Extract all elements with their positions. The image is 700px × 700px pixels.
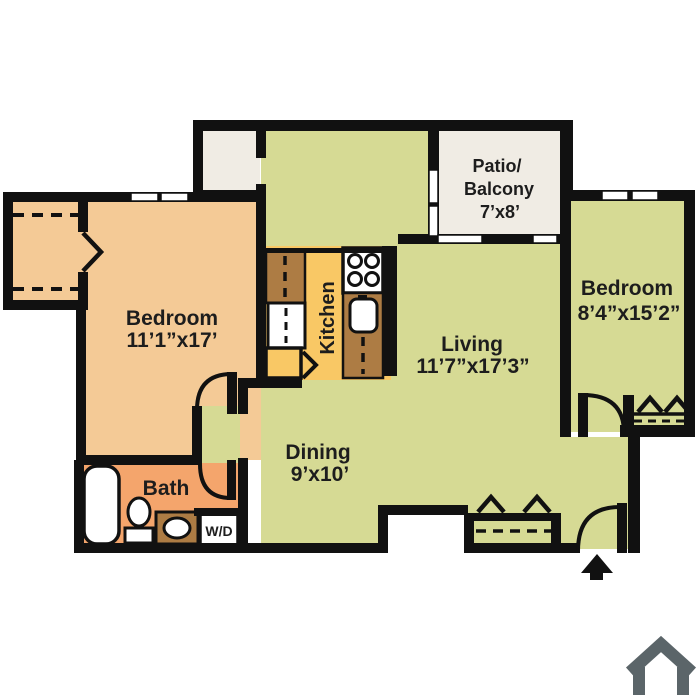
- burner-icon: [349, 273, 362, 286]
- wall-segment: [76, 455, 202, 465]
- washer-dryer-label: W/D: [205, 523, 232, 539]
- door-leaf: [578, 393, 588, 437]
- kitchen-label: Kitchen: [317, 281, 339, 354]
- wall-segment: [382, 246, 397, 376]
- entry-arrow-head: [581, 554, 613, 573]
- door-leaf: [227, 372, 237, 414]
- right-bedroom-label: Bedroom: [581, 277, 673, 300]
- pantry-cabinet-icon: [266, 348, 301, 378]
- wall-segment: [193, 120, 573, 131]
- living-dims: 11’7”x17’3”: [416, 355, 529, 378]
- house-wall-right: [677, 667, 689, 695]
- bath-label: Bath: [143, 477, 190, 500]
- burner-icon: [366, 255, 379, 268]
- toilet-tank-icon: [125, 528, 153, 543]
- wall-segment: [378, 505, 468, 515]
- living-label: Living: [441, 333, 503, 356]
- wall-segment: [256, 126, 266, 158]
- wall-segment: [74, 460, 84, 553]
- entry-arrow-stem: [590, 572, 603, 580]
- patio-door-glass: [429, 206, 438, 236]
- floorplan-canvas: Bedroom 11’1”x17’ Living 11’7”x17’3” Din…: [0, 0, 700, 700]
- right-bedroom-dims: 8’4”x15’2”: [578, 302, 681, 325]
- patio-door-glass: [429, 170, 438, 203]
- left-bedroom-dims: 11’1”x17’: [126, 329, 217, 352]
- wall-segment: [192, 406, 202, 465]
- wall-segment: [628, 425, 640, 553]
- wall-segment: [193, 120, 203, 200]
- patio-door-glass: [533, 235, 557, 243]
- wall-segment: [238, 378, 248, 414]
- wall-segment: [3, 192, 13, 310]
- floorplan-svg: Bedroom 11’1”x17’ Living 11’7”x17’3” Din…: [0, 0, 700, 700]
- wall-segment: [3, 300, 88, 310]
- window-icon: [161, 193, 188, 201]
- wall-segment: [560, 120, 573, 195]
- house-wall-left: [633, 667, 645, 695]
- door-leaf: [227, 460, 236, 500]
- bath-sink-icon: [164, 518, 190, 538]
- wall-segment: [464, 513, 559, 521]
- alcove-area: [198, 126, 260, 196]
- bathtub-icon: [84, 466, 119, 544]
- wall-segment: [238, 458, 248, 553]
- window-icon: [632, 191, 658, 200]
- wall-segment: [74, 543, 386, 553]
- sink-icon: [350, 299, 377, 332]
- house-icon: [630, 644, 692, 695]
- stove-icon: [343, 248, 383, 293]
- window-icon: [602, 191, 628, 200]
- wall-segment: [464, 543, 580, 553]
- dining-dims: 9’x10’: [291, 463, 349, 486]
- dining-label: Dining: [285, 441, 350, 464]
- door-leaf: [617, 503, 627, 553]
- patio-label-line1: Patio/: [472, 156, 521, 176]
- wall-segment: [256, 192, 266, 388]
- wall-segment: [194, 508, 238, 516]
- left-bedroom-label: Bedroom: [126, 307, 218, 330]
- burner-icon: [366, 273, 379, 286]
- patio-door-glass: [438, 235, 482, 243]
- wall-segment: [76, 310, 86, 465]
- patio-dims: 7’x8’: [480, 202, 520, 222]
- hall-area: [200, 406, 240, 463]
- wall-segment: [258, 248, 397, 253]
- wall-segment: [560, 190, 571, 437]
- wall-segment: [551, 513, 561, 553]
- entry-arrow-icon: [581, 554, 613, 580]
- toilet-icon: [128, 498, 150, 526]
- window-icon: [131, 193, 158, 201]
- patio-label-line2: Balcony: [464, 179, 534, 199]
- burner-icon: [349, 255, 362, 268]
- wall-segment: [78, 272, 88, 310]
- wall-segment: [78, 202, 88, 232]
- exterior-notch: [383, 510, 468, 553]
- wall-segment: [684, 190, 695, 437]
